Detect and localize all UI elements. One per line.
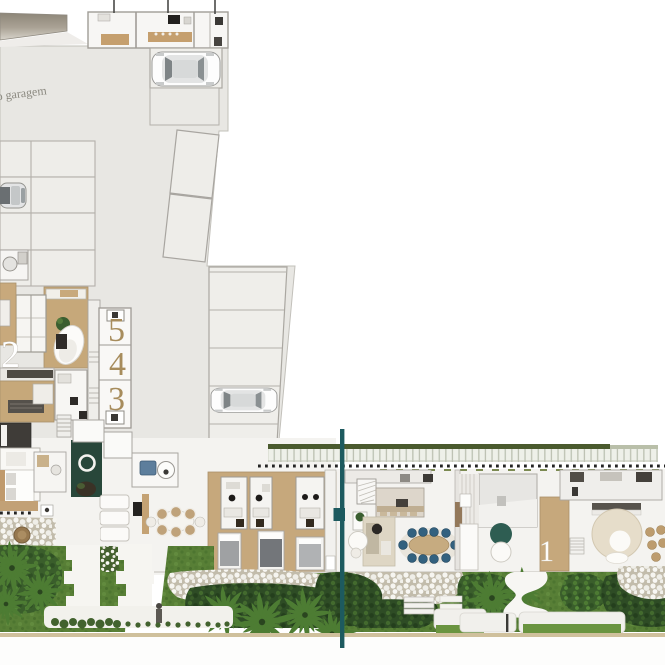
- svg-text:1: 1: [539, 535, 554, 568]
- svg-text:5: 5: [108, 312, 125, 349]
- svg-text:4: 4: [109, 346, 126, 383]
